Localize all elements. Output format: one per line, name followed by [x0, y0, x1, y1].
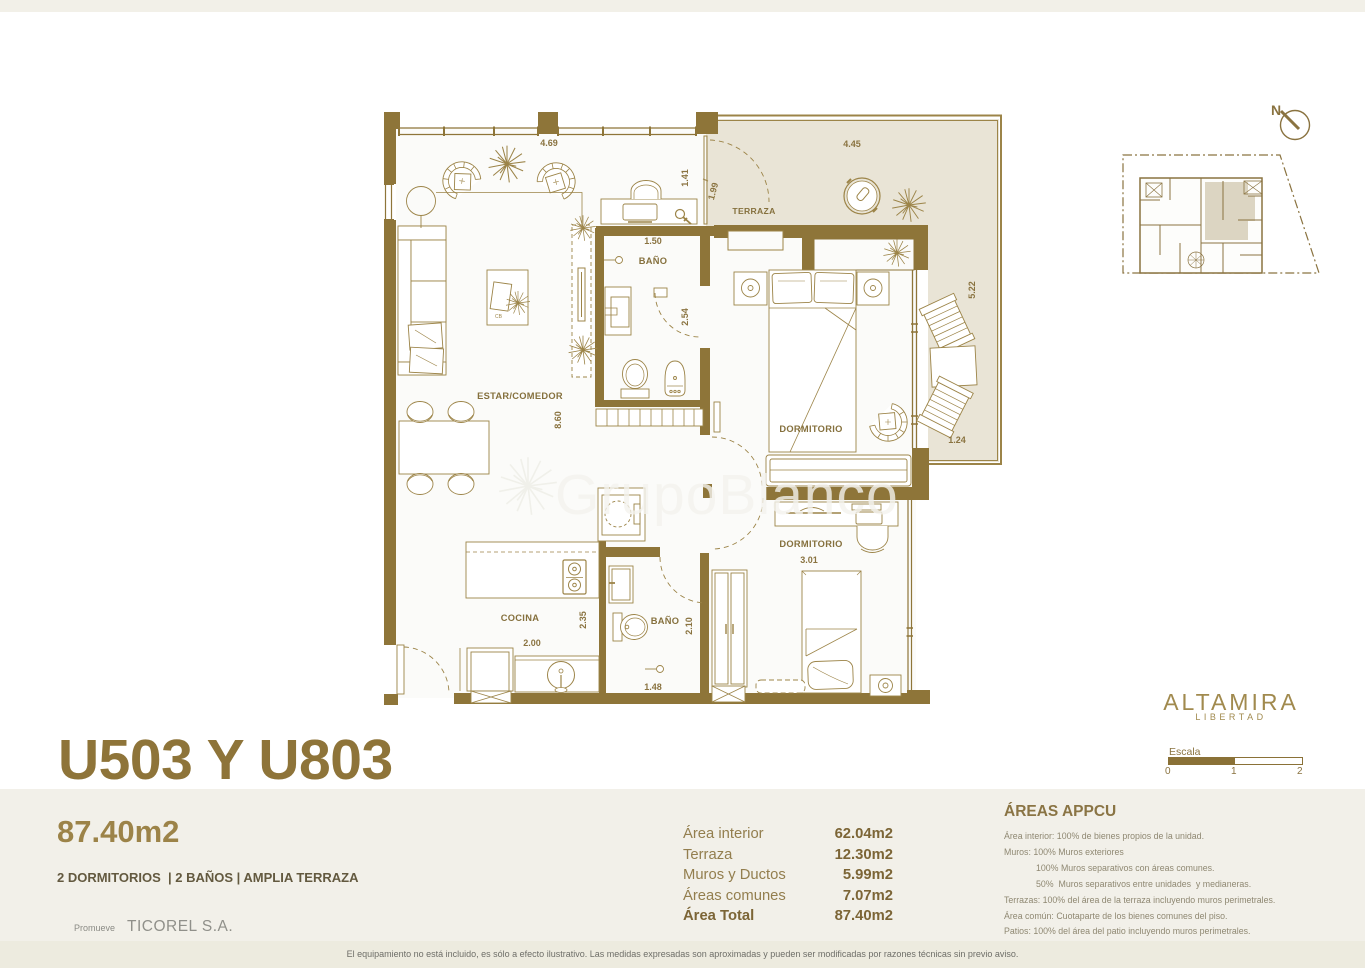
svg-text:5.22: 5.22 [967, 281, 977, 299]
svg-text:2.35: 2.35 [578, 611, 588, 629]
svg-text:BAÑO: BAÑO [639, 256, 668, 266]
svg-text:2.10: 2.10 [684, 617, 694, 635]
svg-text:TERRAZA: TERRAZA [732, 206, 775, 216]
svg-text:1.24: 1.24 [948, 435, 966, 445]
svg-text:4.45: 4.45 [843, 139, 861, 149]
svg-text:1.50: 1.50 [644, 236, 662, 246]
svg-text:DORMITORIO: DORMITORIO [779, 539, 842, 549]
svg-text:2.00: 2.00 [523, 638, 541, 648]
svg-text:1.41: 1.41 [680, 169, 690, 187]
svg-text:N: N [1271, 102, 1281, 118]
svg-text:BAÑO: BAÑO [651, 616, 680, 626]
svg-text:4.69: 4.69 [540, 138, 558, 148]
svg-text:CB: CB [495, 314, 503, 320]
svg-text:3.01: 3.01 [800, 555, 818, 565]
svg-text:COCINA: COCINA [501, 613, 539, 623]
svg-text:1.48: 1.48 [644, 682, 662, 692]
svg-text:8.60: 8.60 [553, 411, 563, 429]
svg-text:GrupoBlanco: GrupoBlanco [555, 463, 899, 527]
svg-text:2.54: 2.54 [680, 308, 690, 326]
svg-text:ESTAR/COMEDOR: ESTAR/COMEDOR [477, 391, 563, 401]
svg-text:DORMITORIO: DORMITORIO [779, 424, 842, 434]
